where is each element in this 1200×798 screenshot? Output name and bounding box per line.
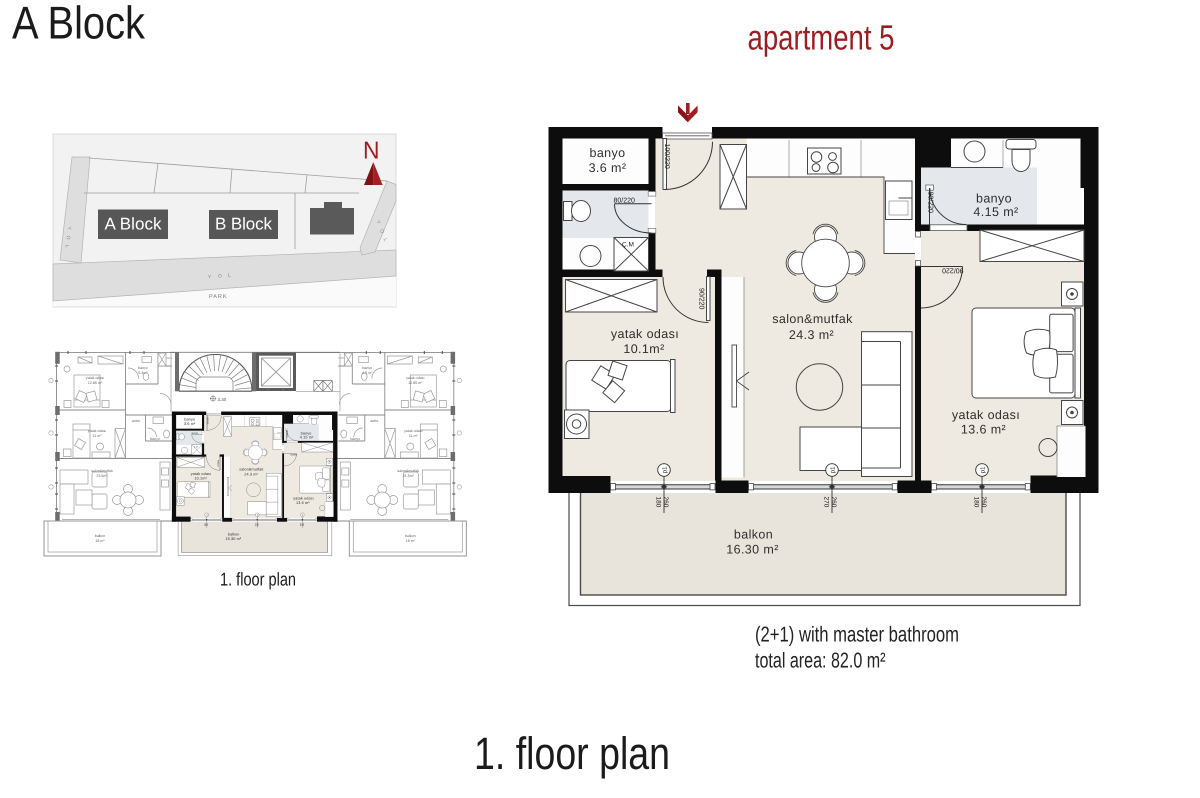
svg-text:banyo: banyo bbox=[350, 437, 360, 441]
svg-text:18 m²: 18 m² bbox=[95, 539, 105, 543]
svg-text:salon&mutfak: salon&mutfak bbox=[397, 469, 419, 473]
svg-text:1. floor plan: 1. floor plan bbox=[474, 728, 670, 779]
svg-text:total area: 82.0 m²: total area: 82.0 m² bbox=[755, 649, 886, 673]
svg-text:3.30: 3.30 bbox=[218, 397, 227, 402]
svg-text:banyo: banyo bbox=[138, 366, 148, 370]
svg-text:apartment 5: apartment 5 bbox=[748, 19, 895, 58]
svg-text:yatak odası: yatak odası bbox=[88, 429, 106, 433]
svg-text:yatak odası: yatak odası bbox=[406, 376, 424, 380]
svg-text:balkon: balkon bbox=[405, 534, 416, 538]
svg-text:11 m²: 11 m² bbox=[93, 434, 103, 438]
svg-text:banyo: banyo bbox=[150, 437, 160, 441]
svg-text:23.5m²: 23.5m² bbox=[96, 474, 108, 478]
svg-text:salon&mutfak: salon&mutfak bbox=[91, 469, 113, 473]
svg-text:yatak odası: yatak odası bbox=[86, 376, 104, 380]
svg-text:11 m²: 11 m² bbox=[409, 434, 419, 438]
svg-text:(2+1) with master bathroom: (2+1) with master bathroom bbox=[755, 623, 959, 647]
svg-text:N: N bbox=[363, 138, 380, 165]
svg-text:antre: antre bbox=[370, 419, 378, 423]
svg-text:O: O bbox=[218, 273, 222, 279]
svg-text:4.5 m²: 4.5 m² bbox=[362, 371, 373, 375]
svg-text:12.85 m²: 12.85 m² bbox=[408, 381, 423, 385]
svg-text:18 m²: 18 m² bbox=[406, 539, 416, 543]
svg-text:12.85 m²: 12.85 m² bbox=[88, 381, 103, 385]
svg-text:A Block: A Block bbox=[12, 0, 146, 49]
svg-text:B Block: B Block bbox=[215, 215, 273, 234]
svg-text:6.4m²: 6.4m² bbox=[138, 371, 148, 375]
svg-text:yatak odası: yatak odası bbox=[404, 429, 422, 433]
svg-text:A Block: A Block bbox=[105, 215, 163, 234]
svg-text:21.5m²: 21.5m² bbox=[403, 474, 415, 478]
svg-text:balkon: balkon bbox=[95, 534, 106, 538]
svg-text:PARK: PARK bbox=[209, 294, 228, 300]
svg-text:banyo: banyo bbox=[362, 366, 372, 370]
svg-text:antre: antre bbox=[132, 419, 140, 423]
svg-text:1. floor plan: 1. floor plan bbox=[220, 569, 296, 590]
